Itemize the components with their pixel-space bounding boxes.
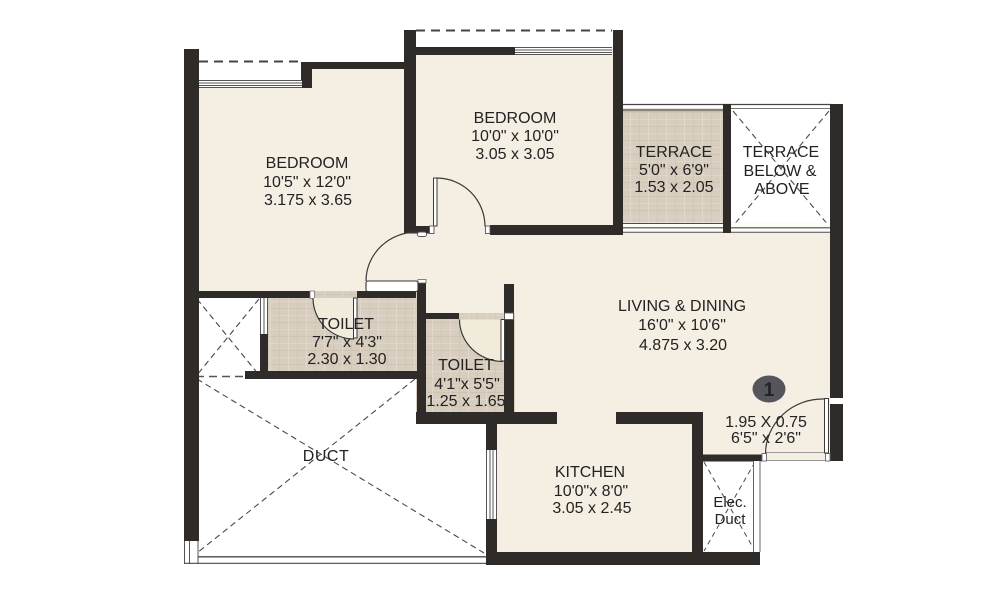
svg-text:TERRACE: TERRACE [636,144,712,161]
svg-text:BEDROOM: BEDROOM [474,110,557,127]
svg-text:DUCT: DUCT [303,448,349,465]
svg-text:BELOW &: BELOW & [744,163,817,180]
svg-text:6'5" x 2'6": 6'5" x 2'6" [731,430,801,447]
svg-text:TOILET: TOILET [318,316,374,333]
svg-text:2.30 x 1.30: 2.30 x 1.30 [307,351,386,368]
svg-text:4'1"x 5'5": 4'1"x 5'5" [434,376,500,393]
svg-text:5'0" x 6'9": 5'0" x 6'9" [639,162,709,179]
svg-text:7'7" x 4'3": 7'7" x 4'3" [312,334,382,351]
svg-text:1: 1 [764,380,775,401]
svg-text:16'0" x 10'6": 16'0" x 10'6" [638,317,726,334]
svg-text:4.875 x 3.20: 4.875 x 3.20 [639,337,727,354]
svg-text:Elec.: Elec. [713,494,746,511]
svg-text:3.05 x 3.05: 3.05 x 3.05 [475,146,554,163]
svg-text:10'5" x 12'0": 10'5" x 12'0" [263,174,351,191]
svg-text:ABOVE: ABOVE [754,181,809,198]
svg-text:3.05 x 2.45: 3.05 x 2.45 [552,500,631,517]
svg-text:KITCHEN: KITCHEN [555,464,625,481]
svg-text:10'0" x 10'0": 10'0" x 10'0" [471,128,559,145]
svg-text:LIVING & DINING: LIVING & DINING [618,298,746,315]
svg-text:TERRACE: TERRACE [743,144,819,161]
svg-text:Duct: Duct [715,511,747,528]
svg-text:1.25 x 1.65: 1.25 x 1.65 [426,393,505,410]
svg-text:BEDROOM: BEDROOM [266,155,349,172]
svg-text:TOILET: TOILET [438,357,494,374]
svg-text:1.53 x 2.05: 1.53 x 2.05 [634,179,713,196]
svg-text:10'0"x 8'0": 10'0"x 8'0" [554,483,628,500]
svg-text:3.175 x 3.65: 3.175 x 3.65 [264,192,352,209]
svg-text:1.95 X 0.75: 1.95 X 0.75 [725,414,807,431]
